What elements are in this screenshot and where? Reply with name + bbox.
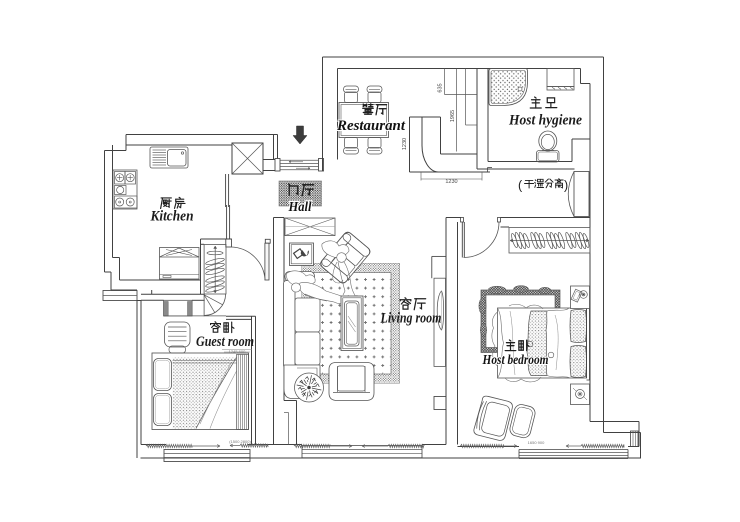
svg-text:1650 900: 1650 900 — [528, 440, 545, 445]
svg-text:635: 635 — [438, 83, 444, 92]
svg-text:1245 600: 1245 600 — [229, 349, 246, 354]
svg-text:Living room: Living room — [380, 311, 442, 327]
svg-text:Hall: Hall — [288, 200, 312, 215]
svg-text:Host bedroom: Host bedroom — [482, 353, 549, 368]
svg-text:1230: 1230 — [445, 179, 457, 185]
svg-text:): ) — [564, 179, 568, 193]
svg-text:1230: 1230 — [402, 138, 408, 150]
svg-text:Restaurant: Restaurant — [336, 118, 406, 134]
svg-text:Guest room: Guest room — [196, 334, 254, 350]
svg-text:Kitchen: Kitchen — [150, 209, 194, 225]
svg-text:Host hygiene: Host hygiene — [508, 113, 582, 129]
svg-text:1965: 1965 — [450, 110, 456, 122]
svg-text:(1500 2800): (1500 2800) — [229, 439, 251, 444]
